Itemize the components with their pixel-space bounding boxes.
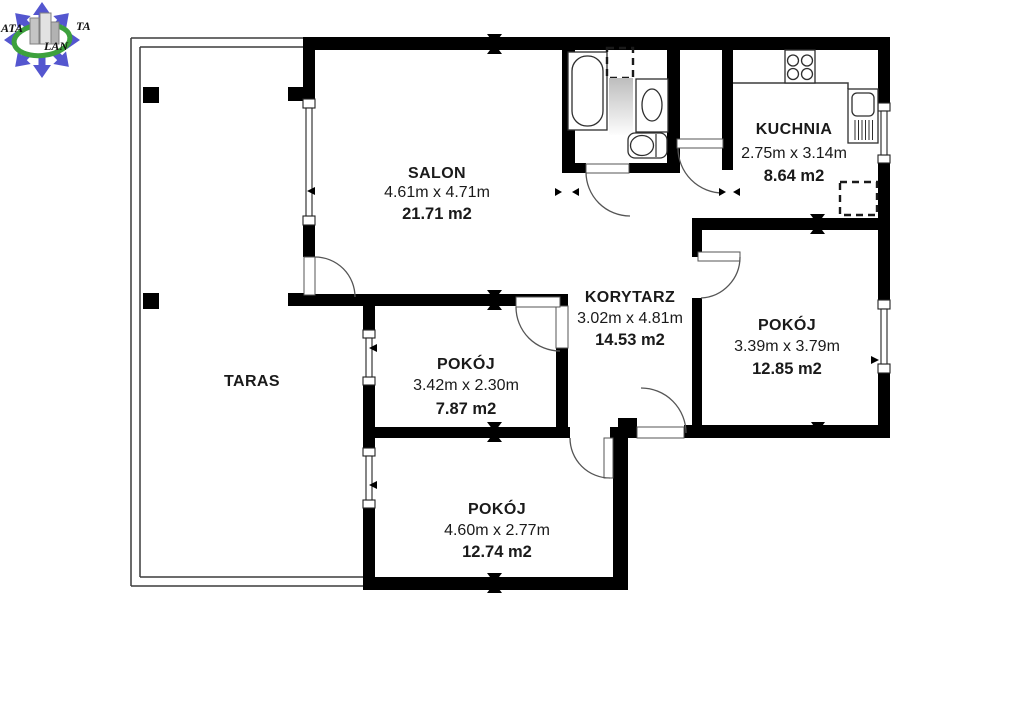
terrace-pillar-bottom bbox=[143, 293, 159, 309]
wall-kitchen-room-divider bbox=[692, 218, 890, 230]
window-glass bbox=[366, 338, 372, 377]
window-cap bbox=[878, 155, 890, 163]
window-cap bbox=[303, 99, 315, 108]
window-cap bbox=[363, 330, 375, 338]
window-glass bbox=[881, 111, 887, 155]
fridge-slot-dashed-icon bbox=[840, 182, 877, 215]
pokoj-right-area: 12.85 m2 bbox=[752, 360, 822, 378]
door-swing-arc bbox=[315, 257, 355, 297]
stove-burner-icon bbox=[788, 69, 799, 80]
wall-middle-horizontal bbox=[363, 427, 570, 438]
wall-pokoj-bottom-left-lower bbox=[363, 508, 375, 588]
salon-dims: 4.61m x 4.71m bbox=[384, 184, 490, 201]
wall-kitchen-left bbox=[722, 37, 733, 170]
korytarz-dims: 3.02m x 4.81m bbox=[577, 310, 683, 327]
washing-machine-drum-icon bbox=[642, 89, 662, 121]
room-labels: SALON 4.61m x 4.71m 21.71 m2 KUCHNIA 2.7… bbox=[224, 121, 847, 561]
toilet-bowl-icon bbox=[631, 136, 654, 156]
wall-middle-jamb bbox=[610, 427, 618, 438]
wall-pokoj-small-right bbox=[556, 348, 568, 427]
window-glass bbox=[306, 108, 312, 216]
pokoj-small-dims: 3.42m x 2.30m bbox=[413, 377, 519, 394]
wall-pokoj-right-left-lower bbox=[692, 298, 702, 427]
floor-plan-canvas: SALON 4.61m x 4.71m 21.71 m2 KUCHNIA 2.7… bbox=[0, 0, 1024, 724]
pokoj-small-area: 7.87 m2 bbox=[436, 400, 497, 418]
wall-pokoj-small-left-upper bbox=[363, 306, 375, 330]
door-pokoj-small bbox=[516, 297, 568, 351]
stove-burner-icon bbox=[788, 55, 799, 66]
dim-arrow-passage-right bbox=[572, 188, 579, 196]
wall-pokoj-bottom-left-upper bbox=[363, 438, 375, 448]
door-gap bbox=[556, 306, 568, 348]
window-glass bbox=[881, 309, 887, 364]
agency-logo: ATA TA LAN bbox=[0, 2, 91, 78]
salon-area: 21.71 m2 bbox=[402, 205, 472, 223]
door-kitchen bbox=[677, 139, 723, 193]
floor-plan-page: SALON 4.61m x 4.71m 21.71 m2 KUCHNIA 2.7… bbox=[0, 0, 1024, 724]
window-cap bbox=[878, 103, 890, 111]
wall-salon-left-lower bbox=[303, 225, 315, 257]
logo-text-left: ATA bbox=[0, 21, 23, 35]
window-pokoj-right bbox=[878, 300, 890, 373]
window-cap bbox=[363, 377, 375, 385]
wall-pokoj-small-left-lower bbox=[363, 385, 375, 427]
door-pokoj-right bbox=[698, 252, 740, 298]
bathroom-fixtures bbox=[568, 48, 668, 158]
window-cap bbox=[878, 364, 890, 373]
window-cap bbox=[363, 448, 375, 456]
logo-building bbox=[30, 18, 39, 44]
kuchnia-area: 8.64 m2 bbox=[764, 167, 825, 185]
door-swing-arc bbox=[701, 257, 740, 298]
pokoj-small-name: POKÓJ bbox=[437, 354, 495, 373]
wall-right-upper bbox=[878, 37, 890, 103]
window-cap bbox=[878, 300, 890, 309]
door-bathroom bbox=[586, 164, 630, 216]
door-leaf bbox=[586, 164, 629, 173]
pokoj-right-name: POKÓJ bbox=[758, 315, 816, 334]
window-pokoj-small bbox=[363, 330, 375, 385]
wall-entrance-stub bbox=[618, 418, 637, 438]
sink-basin-icon bbox=[852, 93, 874, 116]
pokoj-bottom-area: 12.74 m2 bbox=[462, 543, 532, 561]
window-kitchen bbox=[878, 103, 890, 163]
stove-burner-icon bbox=[802, 55, 813, 66]
kuchnia-dims: 2.75m x 3.14m bbox=[741, 145, 847, 162]
wall-top bbox=[303, 37, 890, 50]
window-pokoj-bottom bbox=[363, 448, 375, 508]
window-glass bbox=[366, 456, 372, 500]
dim-arrow-kitchen-door-right bbox=[733, 188, 740, 196]
pokoj-right-dims: 3.39m x 3.79m bbox=[734, 338, 840, 355]
dim-arrow-kitchen-door-left bbox=[719, 188, 726, 196]
wall-pokoj-bottom-right bbox=[613, 438, 628, 590]
door-leaf bbox=[604, 438, 613, 478]
dim-arrow-pokoj-right-window bbox=[871, 356, 879, 364]
window-cap bbox=[303, 216, 315, 225]
door-leaf bbox=[637, 427, 684, 438]
window-cap bbox=[363, 500, 375, 508]
door-swing-arc bbox=[678, 148, 723, 193]
stove-burner-icon bbox=[802, 69, 813, 80]
door-swing-arc bbox=[641, 388, 686, 433]
pokoj-bottom-name: POKÓJ bbox=[468, 499, 526, 518]
logo-text-bottom: LAN bbox=[43, 39, 69, 53]
terrace-inner-line bbox=[140, 47, 363, 577]
logo-text-right: TA bbox=[76, 19, 91, 33]
door-leaf bbox=[516, 297, 560, 307]
door-leaf bbox=[304, 257, 315, 295]
door-swing-arc bbox=[586, 172, 630, 216]
washer-slot-dashed-icon bbox=[607, 48, 633, 78]
kitchen-counter-line bbox=[733, 83, 848, 89]
kuchnia-name: KUCHNIA bbox=[756, 121, 833, 138]
door-balcony-salon bbox=[304, 257, 355, 297]
door-swing-arc bbox=[516, 307, 560, 351]
terrace-outline bbox=[131, 38, 369, 586]
door-leaf bbox=[698, 252, 740, 261]
door-entrance bbox=[637, 388, 686, 438]
taras-name: TARAS bbox=[224, 373, 280, 390]
korytarz-area: 14.53 m2 bbox=[595, 331, 665, 349]
salon-name: SALON bbox=[408, 165, 466, 182]
wall-right-middle bbox=[878, 163, 890, 300]
window-salon bbox=[303, 99, 315, 225]
shower-shade-icon bbox=[609, 78, 633, 135]
wall-pokoj-right-bottom bbox=[684, 425, 890, 438]
wall-bathroom-bottom-left bbox=[562, 163, 586, 173]
dim-arrow-passage-left bbox=[555, 188, 562, 196]
terrace-pillar-top bbox=[143, 87, 159, 103]
korytarz-name: KORYTARZ bbox=[585, 289, 675, 306]
door-pokoj-bottom bbox=[570, 438, 613, 478]
pokoj-bottom-dims: 4.60m x 2.77m bbox=[444, 522, 550, 539]
terrace-outer-line bbox=[131, 38, 369, 586]
door-leaf bbox=[677, 139, 723, 148]
wall-bathroom-bottom-right bbox=[629, 163, 680, 173]
bathtub-basin-icon bbox=[572, 56, 603, 126]
